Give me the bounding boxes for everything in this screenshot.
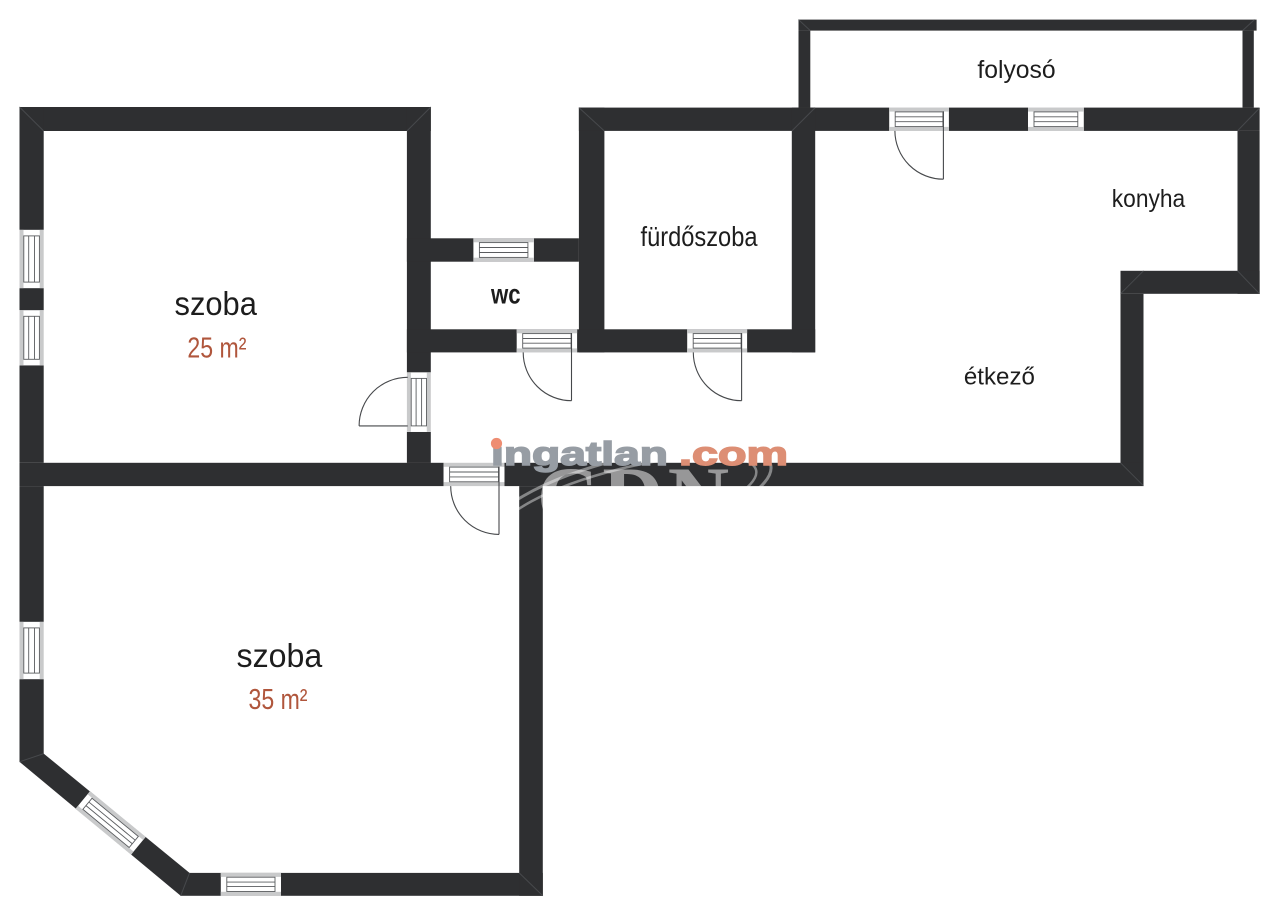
svg-text:folyosó: folyosó [977,56,1055,84]
svg-text:25 m²: 25 m² [187,333,246,365]
svg-text:wc: wc [490,278,520,309]
svg-text:fürdőszoba: fürdőszoba [641,221,759,252]
svg-text:szoba: szoba [175,285,258,322]
svg-text:konyha: konyha [1112,186,1186,213]
svg-text:.com: .com [679,435,788,472]
svg-text:szoba: szoba [237,637,323,674]
svg-text:35 m²: 35 m² [249,684,308,716]
svg-text:ıngatlan: ıngatlan [491,435,668,472]
svg-text:étkező: étkező [964,365,1035,391]
